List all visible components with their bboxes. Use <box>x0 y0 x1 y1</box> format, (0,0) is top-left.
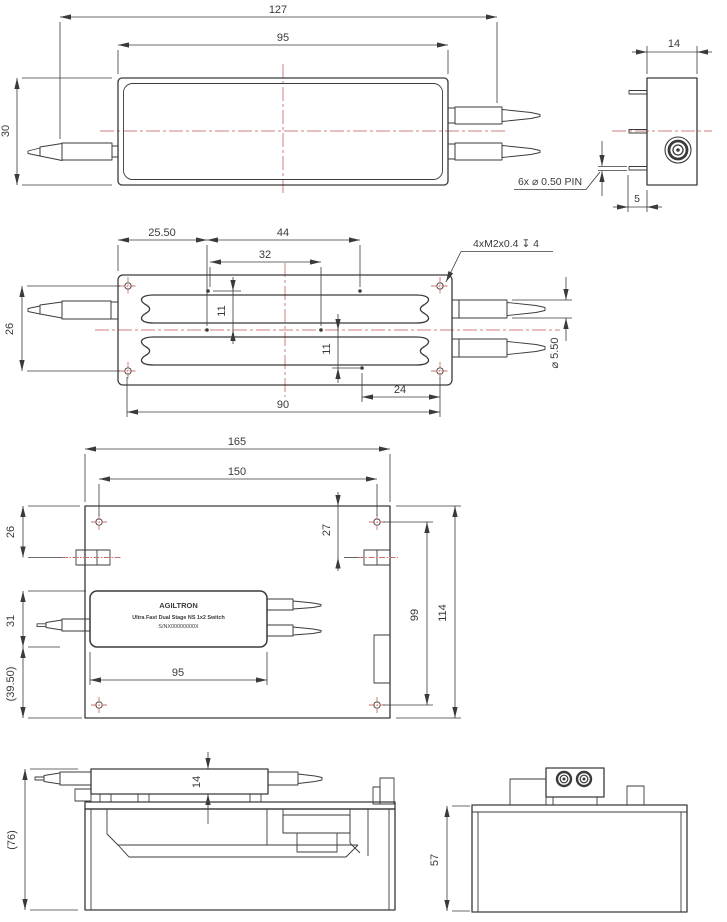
label-product: Ultra Fast Dual Stage NS 1x2 Switch <box>132 615 225 621</box>
dim-25-50: 25.50 <box>118 227 207 326</box>
dim-24: 24 <box>362 373 440 402</box>
dim-165-text: 165 <box>228 436 246 448</box>
dim-25-50-text: 25.50 <box>148 227 176 239</box>
dim-90-text: 90 <box>277 399 289 411</box>
dim-26-plate: 26 <box>5 506 80 558</box>
end-tab <box>627 786 644 805</box>
dim-14-height-text: 14 <box>191 776 203 788</box>
thread-callout: 4xM2x0.4 ↧ 4 <box>446 238 553 282</box>
electrical-connector <box>665 137 691 163</box>
dim-32-text: 32 <box>259 249 271 261</box>
dim-127: 127 <box>60 4 497 139</box>
dim-5-text: 5 <box>634 193 640 205</box>
side-block <box>75 789 91 801</box>
dim-11-lower: 11 <box>321 314 360 383</box>
connector-block <box>546 768 604 797</box>
right-connector-tab <box>358 550 398 565</box>
dim-39-50-text: (39.50) <box>5 667 17 702</box>
dim-44: 44 <box>207 227 360 287</box>
dim-114: 114 <box>396 506 461 718</box>
dim-57: 57 <box>429 806 470 911</box>
dim-24-text: 24 <box>394 384 406 396</box>
pin-1 <box>629 91 647 95</box>
dim-150: 150 <box>99 466 377 516</box>
dim-30: 30 <box>0 78 112 185</box>
dim-114-text: 114 <box>437 604 449 622</box>
dim-26-text: 26 <box>4 323 16 335</box>
dim-31-text: 31 <box>5 615 17 627</box>
edge-cutout <box>374 635 390 683</box>
dim-ferrule-diameter: ⌀ 5.50 <box>512 277 572 369</box>
dim-44-text: 44 <box>277 227 289 239</box>
dim-27: 27 <box>321 492 358 571</box>
dim-76: (76) <box>6 769 78 910</box>
output-fiber-pigtail-2 <box>267 625 321 636</box>
enclosure-interior <box>107 809 368 857</box>
fiber-connector-1 <box>557 772 571 786</box>
left-connector-tab <box>62 550 122 565</box>
view-top-plan: 127 95 30 <box>0 4 540 196</box>
dim-95-module-text: 95 <box>172 667 184 679</box>
switch-module: AGILTRON Ultra Fast Dual Stage NS 1x2 Sw… <box>90 591 267 647</box>
fiber-connector-2 <box>577 772 591 786</box>
dim-95-module: 95 <box>90 652 267 685</box>
step-plate <box>510 779 546 805</box>
dim-57-text: 57 <box>429 854 441 866</box>
thread-note-text: 4xM2x0.4 ↧ 4 <box>473 238 539 250</box>
input-fiber-pigtail <box>37 619 90 631</box>
dim-ferrule-diameter-text: ⌀ 5.50 <box>549 337 561 368</box>
pin-diameter-callout: 6x ⌀ 0.50 PIN <box>514 141 627 196</box>
dim-150-text: 150 <box>228 466 246 478</box>
dim-11-lower-text: 11 <box>321 343 333 354</box>
dim-99-text: 99 <box>409 609 421 621</box>
output-fiber-pigtail-2 <box>452 339 545 357</box>
dim-95-text: 95 <box>277 32 289 44</box>
dim-14: 14 <box>632 38 712 74</box>
output-fiber-pigtail <box>268 772 322 785</box>
label-serial: S/NX00000000X <box>158 624 199 630</box>
switch-module-side <box>91 769 268 794</box>
dim-11-upper-text: 11 <box>216 305 228 316</box>
view-plate-plan: AGILTRON Ultra Fast Dual Stage NS 1x2 Sw… <box>5 436 461 718</box>
input-fiber-pigtail <box>28 143 118 161</box>
dim-39-50: (39.50) <box>5 647 82 718</box>
drawing-sheet: 127 95 30 <box>0 0 727 922</box>
output-fiber-pigtail-1 <box>452 300 545 318</box>
input-fiber-pigtail <box>28 301 118 319</box>
dim-26: 26 <box>4 286 120 371</box>
view-end-elevation: 57 <box>429 768 687 912</box>
dim-76-text: (76) <box>6 830 18 850</box>
view-end-connector: 14 6x ⌀ 0.50 PIN 5 <box>514 38 712 212</box>
base-plate <box>85 802 395 809</box>
dim-14-height: 14 <box>191 752 208 824</box>
enclosure-outline <box>85 809 395 910</box>
dim-14-text: 14 <box>668 38 680 50</box>
rear-terminal-block <box>373 778 394 804</box>
view-side-elevation: 14 (76) <box>6 752 395 910</box>
dim-5: 5 <box>613 175 662 212</box>
pin-3 <box>629 167 647 171</box>
dim-127-text: 127 <box>269 4 287 16</box>
dim-30-text: 30 <box>0 125 12 137</box>
output-fiber-pigtail-2 <box>448 143 540 160</box>
output-fiber-pigtail-1 <box>448 107 540 124</box>
pin-note-text: 6x ⌀ 0.50 PIN <box>518 176 582 188</box>
input-fiber-pigtail <box>35 772 91 785</box>
enclosure-end-outline <box>472 805 687 912</box>
dim-27-text: 27 <box>321 524 333 536</box>
dim-11-upper: 11 <box>213 277 241 344</box>
label-brand: AGILTRON <box>159 601 198 610</box>
dim-26-plate-text: 26 <box>5 526 17 538</box>
view-bottom-plan: 25.50 44 32 11 11 <box>4 227 572 417</box>
output-fiber-pigtail-1 <box>267 599 321 610</box>
